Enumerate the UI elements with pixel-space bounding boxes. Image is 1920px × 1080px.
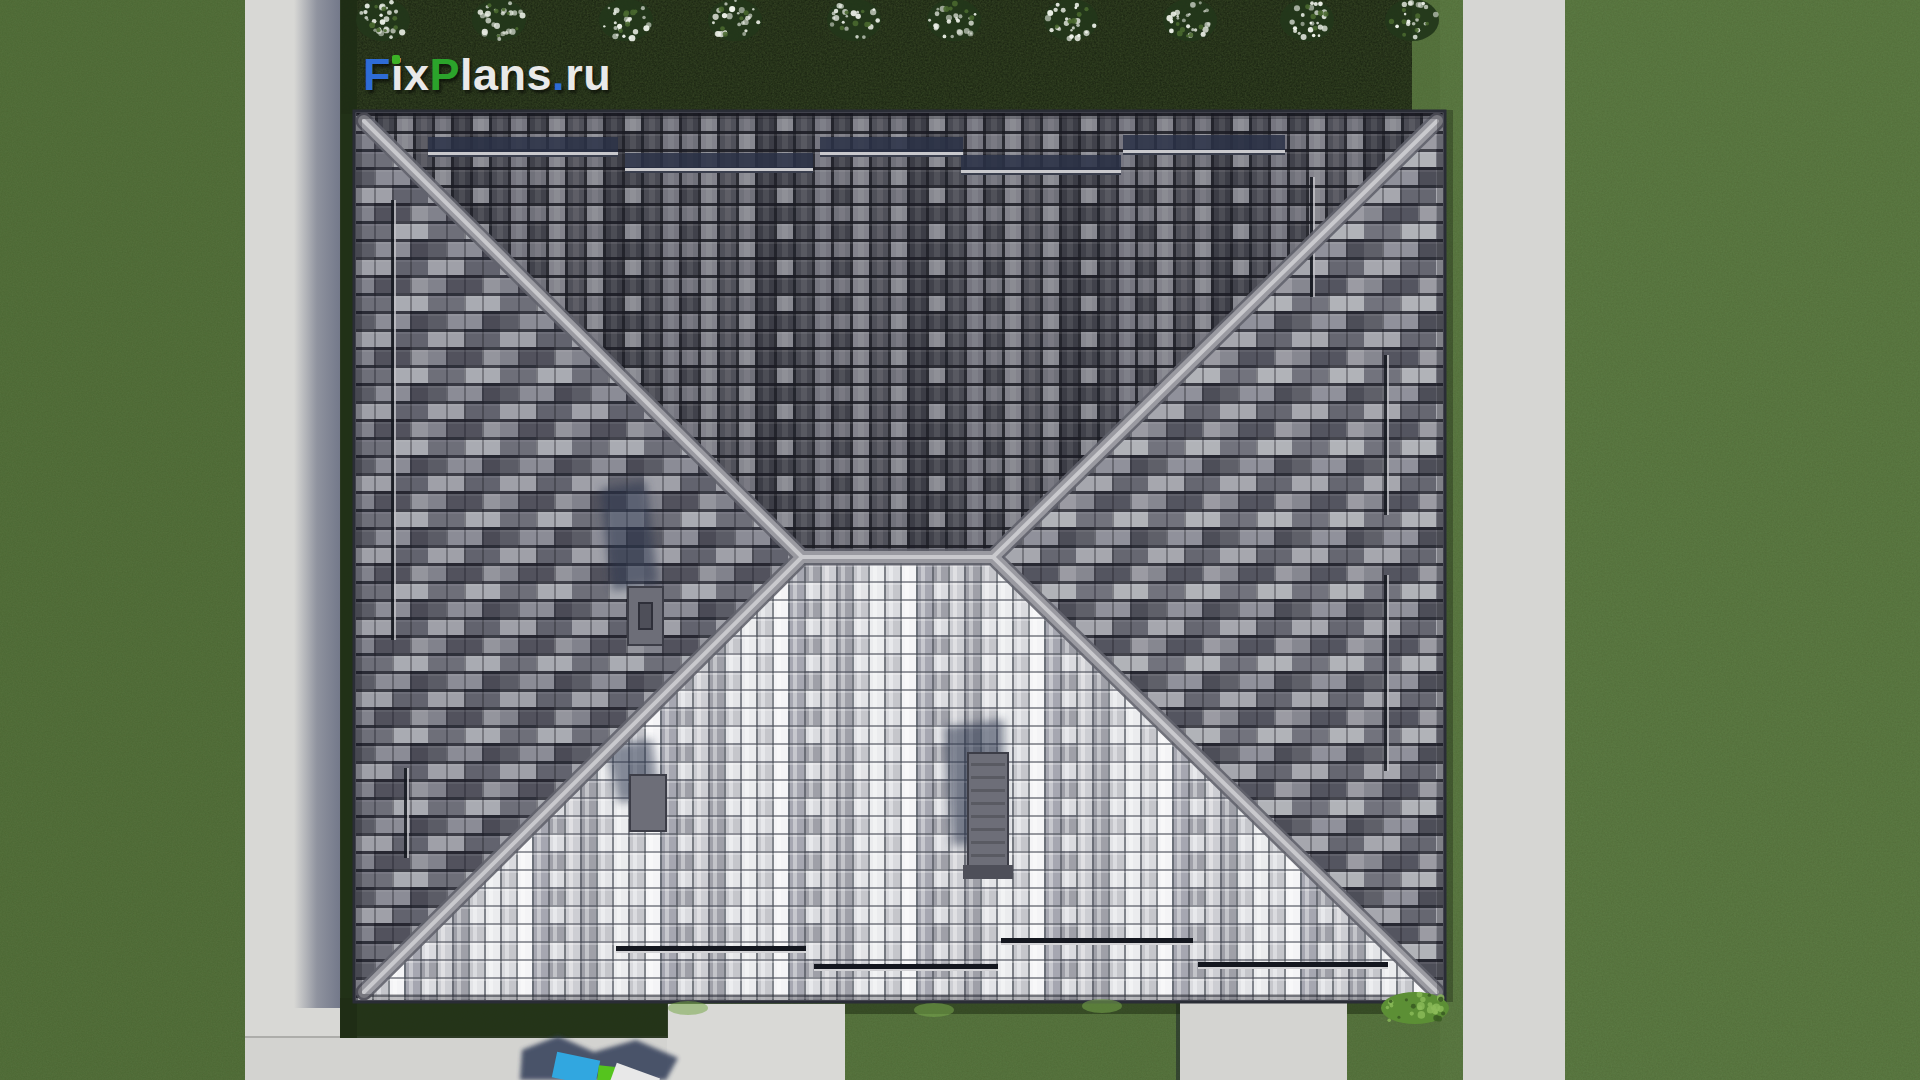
bush-leaf [1186, 34, 1189, 37]
snow-guard-rail-highlight [1198, 967, 1388, 969]
snow-guard-rail-left [391, 200, 394, 640]
bush-flower [1293, 29, 1297, 33]
bush-flower [1412, 22, 1416, 26]
bush-flower [1069, 34, 1074, 39]
watermark-part: lans [460, 52, 552, 97]
bush-flower [484, 13, 488, 17]
shrub-leaf-light [1427, 1002, 1432, 1007]
bush-leaf [1415, 13, 1420, 18]
flowering-bush [1385, 0, 1439, 41]
bush-flower [1415, 18, 1419, 22]
bush-flower [1186, 24, 1190, 28]
shrub-leaf-dark [1411, 1004, 1416, 1009]
shrub-leaf-dark [1405, 998, 1408, 1001]
bush-leaf [1071, 18, 1077, 24]
bush-leaf [739, 16, 743, 20]
bush-flower [365, 3, 370, 8]
shrub-leaf-light [1386, 1006, 1389, 1009]
shrub-leaf-light [1417, 992, 1423, 998]
snow-guard-rail [961, 170, 1121, 173]
bush-flower [497, 37, 501, 41]
bush-flower [724, 2, 727, 5]
snow-guard-rail-shadow [820, 155, 963, 157]
bush-flower [1085, 31, 1088, 34]
watermark-part: F [363, 52, 391, 97]
fixplans-watermark: FixPlans.ru [363, 52, 611, 97]
bush-flower [1171, 11, 1176, 16]
snow-guard-shade [1123, 135, 1285, 150]
shrub-leaf-dark [1438, 997, 1443, 1002]
bush-leaf [625, 21, 630, 26]
flowering-bush [927, 0, 981, 41]
snow-guard-rail-highlight [1387, 575, 1389, 771]
bush-flower [839, 4, 844, 9]
bush-leaf [624, 10, 629, 15]
bush-leaf [1310, 14, 1315, 19]
bush-flower [872, 8, 875, 11]
bush-flower [501, 11, 505, 15]
shrub-leaf-dark [1389, 999, 1393, 1003]
bush-leaf [630, 10, 636, 16]
bush-leaf [840, 26, 845, 31]
porch-pad-south [667, 1004, 845, 1080]
bush-flower [389, 35, 393, 39]
chimney-south-rib [971, 841, 1005, 844]
bush-flower [1190, 2, 1196, 8]
bush-flower [1413, 35, 1418, 40]
bush-flower [505, 31, 509, 35]
roof-vent-south [630, 775, 666, 831]
bush-flower [832, 11, 836, 15]
pad-southeast [1180, 1000, 1347, 1080]
bush-leaf [1084, 7, 1088, 11]
bush-leaf [384, 29, 387, 32]
bush-leaf [1313, 26, 1318, 31]
bush-flower [726, 13, 732, 19]
bush-leaf [507, 12, 510, 15]
bush-flower [943, 35, 947, 39]
bush-flower [1322, 26, 1328, 32]
bush-flower [608, 7, 611, 10]
chimney-south-rib [971, 815, 1005, 818]
bush-flower [622, 35, 625, 38]
snow-guard-shade [820, 137, 963, 152]
bush-flower [1298, 32, 1301, 35]
bush-flower [844, 26, 848, 30]
bush-flower [957, 29, 963, 35]
snow-guard-rail [820, 152, 963, 155]
bush-flower [1191, 28, 1194, 31]
render-viewport: FixPlans.ru [0, 0, 1920, 1080]
shrub-leaf-light [1418, 1011, 1426, 1019]
shrub-leaf-light [1387, 1019, 1391, 1023]
bush-leaf [1323, 11, 1328, 16]
shrub-leaf-dark [1441, 1011, 1445, 1015]
bush-flower [387, 10, 392, 15]
bush-flower [1395, 24, 1399, 28]
bush-flower [1047, 10, 1053, 16]
snow-guard-rail [1001, 938, 1193, 943]
watermark-part: P [430, 52, 461, 97]
bush-flower [384, 16, 390, 22]
bush-flower [1308, 27, 1314, 33]
bush-leaf [853, 20, 859, 26]
bush-leaf [369, 22, 375, 28]
bush-flower [953, 13, 958, 18]
bush-flower [485, 18, 491, 24]
bush-leaf [515, 27, 518, 30]
bush-flower [1418, 2, 1424, 8]
shrub-leaf-dark [1436, 1016, 1442, 1022]
bush-leaf [969, 15, 974, 20]
bush-flower [1053, 8, 1057, 12]
shrub-leaf-light [1427, 1006, 1434, 1013]
flowering-bush [708, 0, 762, 41]
bush-leaf [502, 8, 506, 12]
bush-flower [1199, 1, 1202, 4]
snow-guard-rail-highlight [1387, 355, 1389, 515]
bush-leaf [1055, 24, 1059, 28]
bush-flower [1318, 1, 1323, 6]
snow-guard-rail-highlight [394, 200, 396, 640]
bush-flower [641, 6, 645, 10]
bush-leaf [1425, 22, 1429, 26]
bush-leaf [619, 29, 623, 33]
bush-flower [614, 26, 618, 30]
bush-flower [508, 1, 512, 5]
bush-flower [729, 6, 735, 12]
bush-flower [846, 15, 849, 18]
bush-flower [633, 29, 638, 34]
bush-leaf [392, 16, 397, 21]
snow-guard-rail-highlight [1001, 943, 1193, 945]
shrub-leaf-dark [1428, 993, 1431, 996]
bush-flower [1314, 2, 1318, 6]
bush-flower [1045, 15, 1051, 21]
watermark-part: . [552, 52, 565, 97]
bush-flower [1402, 2, 1407, 7]
bush-flower [1294, 5, 1300, 11]
chimney-south-rib [971, 776, 1005, 779]
bush-flower [359, 11, 363, 15]
bush-flower [1072, 26, 1075, 29]
bush-leaf [1415, 28, 1419, 32]
bush-flower [643, 25, 649, 31]
bush-leaf [1177, 31, 1183, 37]
chimney-south-rib [971, 828, 1005, 831]
shrub-leaf-light [1410, 1011, 1414, 1015]
bush-flower [1289, 19, 1294, 24]
bush-leaf [1189, 33, 1194, 38]
bush-flower [1061, 8, 1066, 13]
bush-flower [1316, 22, 1319, 25]
bush-flower [1312, 34, 1316, 38]
bush-flower [862, 35, 866, 39]
chimney-south-rib [971, 789, 1005, 792]
bush-flower [947, 19, 952, 24]
bush-leaf [744, 10, 749, 15]
bush-leaf [723, 32, 728, 37]
chimney-south-rib [971, 854, 1005, 857]
snow-guard-rail [1198, 962, 1388, 967]
bush-leaf [1402, 33, 1406, 37]
chimney-south-rib [971, 802, 1005, 805]
bush-flower [875, 18, 880, 23]
bush-flower [737, 23, 741, 27]
watermark-part: ru [565, 52, 611, 97]
bush-flower [1188, 13, 1190, 15]
bush-flower [935, 11, 940, 16]
bush-flower [1077, 34, 1080, 37]
shrub-leaf-light [1420, 997, 1425, 1002]
flowering-bush [1163, 0, 1217, 41]
walkway-east [1463, 0, 1565, 1080]
bush-flower [616, 33, 619, 36]
bush-leaf [864, 22, 869, 27]
shrub-leaf-light [1390, 1004, 1394, 1008]
bush-flower [614, 7, 620, 13]
bush-leaf [1401, 19, 1406, 24]
bush-leaf [964, 9, 968, 13]
bush-leaf [1305, 4, 1310, 9]
bush-flower [482, 29, 488, 35]
bush-flower [958, 14, 962, 18]
bush-flower [399, 29, 405, 35]
snow-guard-rail-shadow [1123, 153, 1285, 155]
bush-flower [1207, 22, 1211, 26]
bush-flower [627, 18, 630, 21]
snow-guard-shade [428, 137, 618, 152]
shrub-leaf-dark [1397, 1016, 1400, 1019]
bush-flower [722, 13, 727, 18]
bush-flower [614, 21, 617, 24]
snow-guard-rail-right [1384, 575, 1387, 771]
bush-flower [1194, 28, 1197, 31]
watermark-i-dot [392, 55, 400, 64]
bush-flower [1309, 22, 1312, 25]
snow-guard-rail-left [404, 768, 407, 858]
bush-flower [742, 32, 746, 36]
bush-flower [603, 25, 605, 27]
chimney-south-rib [971, 763, 1005, 766]
bush-flower [1406, 22, 1411, 27]
bush-flower [842, 21, 845, 24]
bush-flower [1318, 34, 1321, 37]
bush-flower [520, 12, 526, 18]
chimney-south-cap [963, 865, 1013, 879]
flowering-bush [827, 0, 881, 41]
snow-guard-shade [961, 155, 1121, 170]
bush-flower [1404, 13, 1407, 16]
snow-guard-rail-highlight [407, 768, 409, 858]
bush-leaf [952, 1, 958, 7]
bush-leaf [943, 6, 949, 12]
bush-flower [950, 35, 954, 39]
bush-leaf [1318, 10, 1324, 16]
shadow-grass-south [340, 998, 668, 1038]
bush-flower [744, 29, 747, 32]
bush-flower [830, 22, 835, 27]
bush-flower [748, 16, 751, 19]
bush-flower [969, 20, 974, 25]
bush-flower [1433, 12, 1439, 18]
flowering-bush [356, 0, 410, 41]
bush-flower [855, 14, 860, 19]
watermark-part: x [404, 52, 430, 97]
bush-leaf [1176, 22, 1180, 26]
bush-leaf [374, 5, 378, 9]
bush-flower [741, 21, 745, 25]
bush-flower [1169, 29, 1174, 34]
bush-flower [933, 23, 938, 28]
bush-flower [491, 22, 496, 27]
grass-tuft [1082, 999, 1122, 1013]
flowering-bush [472, 0, 526, 41]
bush-flower [1182, 18, 1186, 22]
snow-guard-rail [814, 964, 998, 969]
bush-leaf [845, 10, 849, 14]
bush-flower [1205, 8, 1209, 12]
bush-leaf [381, 6, 386, 11]
bush-flower [1056, 3, 1060, 7]
flowering-bush [1280, 0, 1334, 41]
bush-flower [642, 16, 645, 19]
bush-flower [1310, 1, 1314, 5]
bush-flower [509, 29, 515, 35]
bush-flower [1070, 29, 1072, 31]
grass-tuft [668, 1001, 708, 1015]
shrub-leaf-light [1417, 1002, 1425, 1010]
bush-leaf [487, 3, 491, 7]
snow-guard-rail-shadow [961, 173, 1121, 175]
building-shadow-on-walkway [294, 0, 340, 1008]
bush-flower [363, 10, 367, 14]
bush-leaf [497, 34, 500, 37]
watermark-part: i [391, 52, 404, 97]
snow-guard-rail-shadow [625, 171, 813, 173]
bush-flower [956, 19, 960, 23]
bush-flower [856, 11, 859, 14]
bush-leaf [1402, 8, 1406, 12]
snow-guard-rail [1123, 150, 1285, 153]
bush-flower [974, 13, 977, 16]
bush-flower [1424, 5, 1429, 10]
snow-guard-rail [428, 152, 618, 155]
snow-guard-rail-highlight [814, 969, 998, 971]
snow-guard-rail [616, 946, 806, 951]
hip-roof [354, 111, 1445, 1002]
bush-leaf [949, 7, 953, 11]
bush-flower [936, 8, 939, 11]
bush-leaf [1077, 12, 1082, 17]
snow-guard-rail-right [1384, 355, 1387, 515]
bush-flower [389, 0, 394, 5]
bush-flower [1300, 22, 1304, 26]
bush-flower [737, 12, 740, 15]
bush-flower [394, 10, 398, 14]
bush-leaf [494, 9, 499, 14]
bush-leaf [1199, 24, 1204, 29]
shrub-leaf-light [1437, 1006, 1443, 1012]
bush-flower [1301, 13, 1305, 17]
bush-flower [379, 13, 383, 17]
bush-leaf [861, 10, 865, 14]
bush-flower [1176, 17, 1179, 20]
bush-leaf [376, 28, 381, 33]
bush-flower [855, 35, 859, 39]
bush-flower [366, 18, 368, 20]
bush-flower [1301, 34, 1307, 40]
bush-leaf [720, 26, 725, 31]
snow-guard-rail-highlight [616, 951, 806, 953]
snow-guard-rail [625, 168, 813, 171]
bush-flower [1049, 28, 1053, 32]
bush-leaf [719, 7, 724, 12]
bush-flower [1408, 0, 1414, 6]
snow-guard-rail-shadow [428, 155, 618, 157]
bush-flower [1092, 24, 1096, 28]
aerial-roof-render [0, 0, 1920, 1080]
bush-flower [712, 21, 715, 24]
bush-flower [1074, 6, 1077, 9]
snow-guard-shade [625, 153, 813, 168]
bush-flower [756, 20, 760, 24]
bush-flower [964, 28, 970, 34]
grass-tuft [914, 1003, 954, 1017]
bush-leaf [393, 25, 398, 30]
bush-flower [928, 19, 931, 22]
bush-flower [752, 8, 754, 10]
bush-leaf [1389, 19, 1394, 24]
shrub-leaf-light [1434, 1011, 1438, 1015]
bush-flower [712, 14, 718, 20]
bush-flower [832, 16, 835, 19]
roof-vent-west-grille [639, 603, 652, 629]
bush-flower [629, 35, 635, 41]
